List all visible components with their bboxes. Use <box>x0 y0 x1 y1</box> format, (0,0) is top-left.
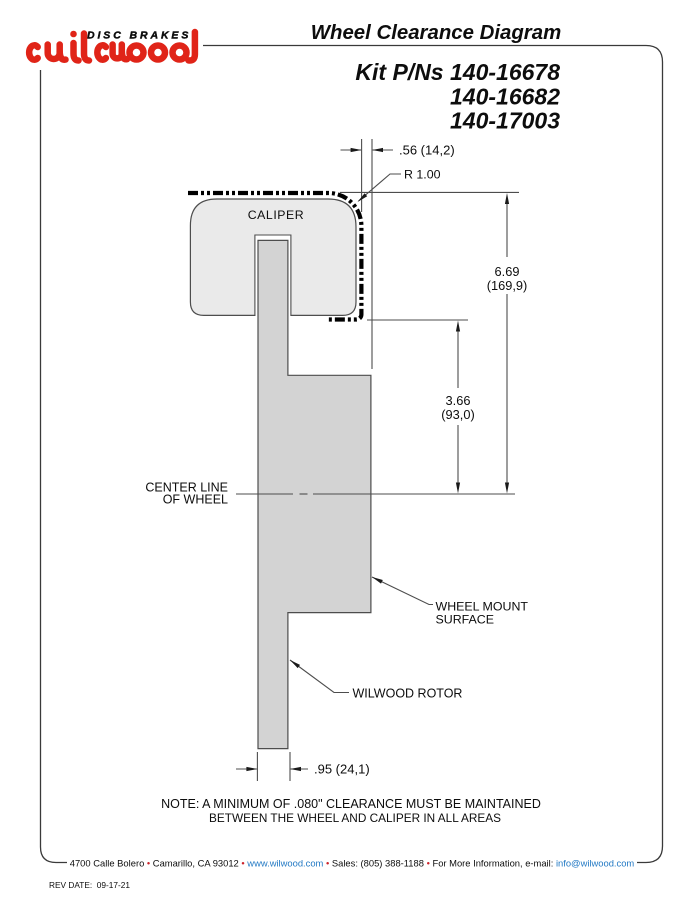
svg-text:3.66: 3.66 <box>446 393 471 408</box>
svg-text:R 1.00: R 1.00 <box>404 168 441 182</box>
svg-text:(93,0): (93,0) <box>441 407 474 422</box>
svg-text:(169,9): (169,9) <box>487 278 528 293</box>
svg-text:REV DATE: 09-17-21: REV DATE: 09-17-21 <box>49 880 130 890</box>
svg-text:.56 (14,2): .56 (14,2) <box>399 143 455 158</box>
svg-text:Kit P/Ns 140-16678: Kit P/Ns 140-16678 <box>355 59 560 85</box>
svg-text:Wheel Clearance Diagram: Wheel Clearance Diagram <box>311 22 561 44</box>
svg-text:4700 Calle Bolero • Camarillo,: 4700 Calle Bolero • Camarillo, CA 93012 … <box>70 858 635 869</box>
svg-text:140-17003: 140-17003 <box>450 107 560 133</box>
svg-text:OF WHEEL: OF WHEEL <box>163 493 228 507</box>
svg-text:DISC BRAKES: DISC BRAKES <box>87 30 191 42</box>
svg-text:WHEEL MOUNT: WHEEL MOUNT <box>436 600 529 614</box>
svg-text:140-16682: 140-16682 <box>450 83 560 109</box>
svg-text:WILWOOD ROTOR: WILWOOD ROTOR <box>353 687 463 701</box>
svg-text:.95 (24,1): .95 (24,1) <box>314 762 370 777</box>
svg-text:NOTE: A MINIMUM OF .080" CLEAR: NOTE: A MINIMUM OF .080" CLEARANCE MUST … <box>161 797 541 811</box>
svg-text:CALIPER: CALIPER <box>248 208 304 222</box>
svg-text:BETWEEN THE WHEEL AND CALIPER: BETWEEN THE WHEEL AND CALIPER IN ALL ARE… <box>209 811 501 825</box>
svg-text:6.69: 6.69 <box>495 264 520 279</box>
svg-text:SURFACE: SURFACE <box>436 613 495 627</box>
